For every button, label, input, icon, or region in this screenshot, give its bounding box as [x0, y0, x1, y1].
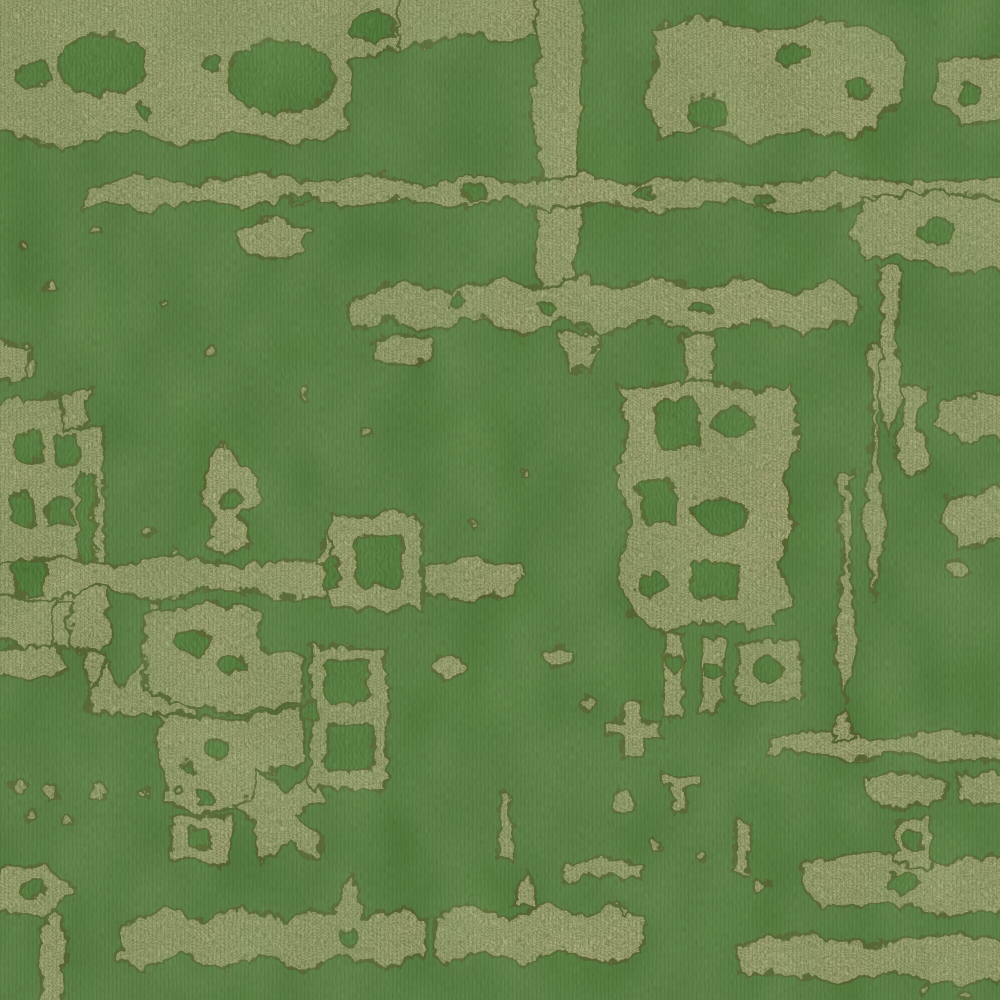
fabric-swatch	[0, 0, 1000, 1000]
fabric-swatch-image	[0, 0, 1000, 1000]
pile-striation-overlay	[0, 0, 1000, 1000]
